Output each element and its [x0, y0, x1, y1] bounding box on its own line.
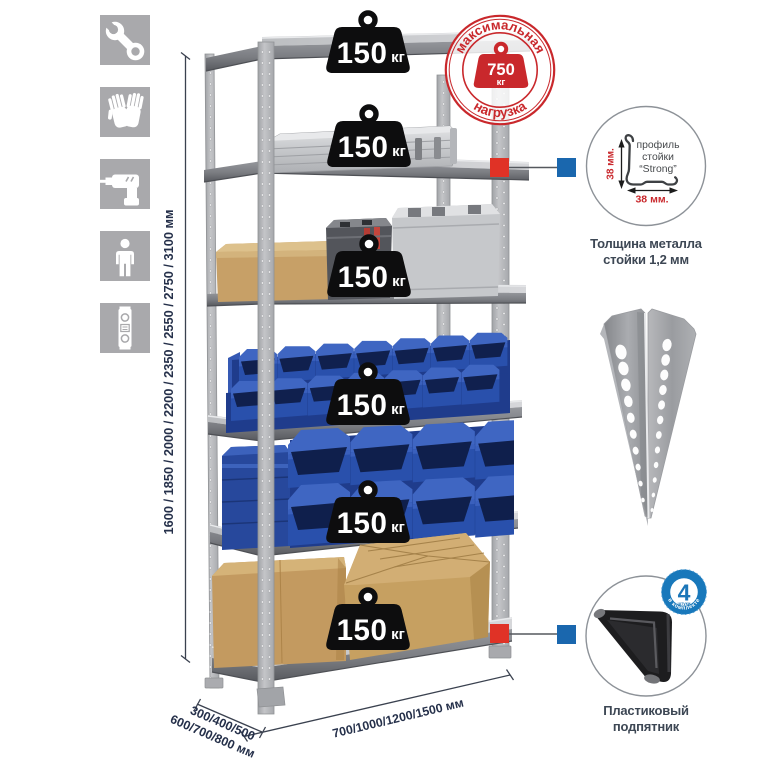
svg-text:Толщина металла: Толщина металла: [590, 236, 703, 251]
svg-text:“Strong”: “Strong”: [639, 164, 677, 175]
svg-text:подпятник: подпятник: [613, 719, 680, 734]
svg-text:Пластиковый: Пластиковый: [603, 703, 689, 718]
svg-text:стойки: стойки: [642, 152, 674, 163]
svg-text:профиль: профиль: [636, 139, 679, 151]
svg-text:стойки 1,2 мм: стойки 1,2 мм: [603, 252, 689, 267]
svg-text:1600 / 1850 / 2000 / 2200 / 23: 1600 / 1850 / 2000 / 2200 / 2350 / 2550 …: [161, 210, 176, 535]
svg-text:38 мм.: 38 мм.: [606, 148, 617, 180]
svg-text:38 мм.: 38 мм.: [635, 194, 668, 206]
svg-text:кг: кг: [497, 77, 506, 88]
